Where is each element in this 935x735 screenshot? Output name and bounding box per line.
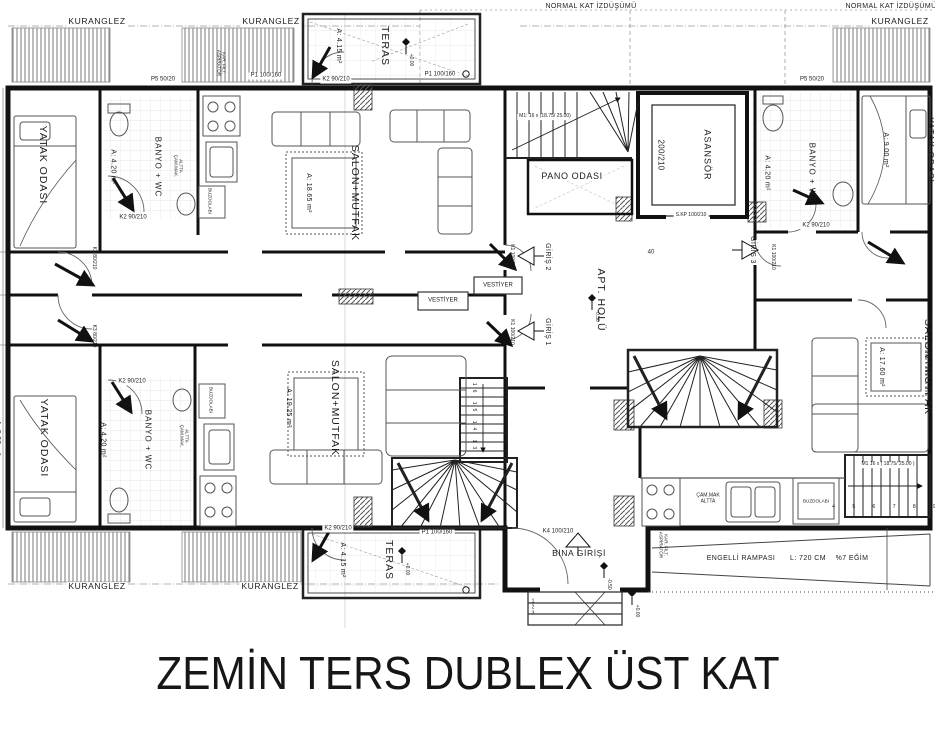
- giris-1-label: GİRİŞ 1: [543, 318, 551, 346]
- dim-40: 40: [648, 250, 655, 257]
- tag-p5: P5 50/20: [149, 77, 177, 84]
- stair-formula: M1: 16 x (18.75/ 25.00): [517, 114, 573, 120]
- giris-3-label: GİRİŞ 3: [748, 236, 756, 264]
- room-label-apt-holu: APT. HOLÜ: [595, 268, 607, 331]
- stair-left-unit: [392, 378, 517, 528]
- drawing-title: ZEMİN TERS DUBLEX ÜST KAT: [156, 646, 779, 700]
- giris-2-label: GİRİŞ 2: [543, 243, 551, 271]
- entrance-arrows: [518, 241, 758, 556]
- stair-winder-right: [628, 350, 777, 427]
- room-label-banyo-tr: BANYO + WC A: 4.20 m²: [744, 143, 853, 203]
- fridge-label: BUZDOLABI: [207, 188, 212, 214]
- tag-k3: K3 80/210: [90, 247, 96, 270]
- kuranglez-label: KURANGLEZ: [240, 17, 301, 27]
- ramp-slope: %7 EĞİM: [834, 555, 871, 563]
- room-label-yatak-bl: YATAK ODASI A: 9.90 m²: [0, 399, 87, 478]
- room-label-teras-bot: TERAS A: 4.15 m²: [320, 540, 432, 580]
- tag-p5: P5 50/20: [798, 77, 826, 84]
- stair-numbers: 4 5 6 7 8 9: [832, 505, 935, 511]
- tag-k1: K1 100/210: [508, 319, 514, 345]
- room-label-salon-bl: SALON+MUTFAK A: 19.25 m²: [266, 360, 378, 456]
- room-label-salon-tl: SALON+MUTFAK A: 18.65 m²: [286, 145, 398, 241]
- aspirator-label: KAR. FİLT. ASPİRATÖR: [216, 50, 227, 76]
- washer-label: ÇAM.MAK ALTTA: [696, 493, 719, 505]
- tag-k2: K2 90/210: [117, 215, 148, 222]
- tag-k2: K2 90/210: [320, 77, 351, 84]
- ramp-label: ENGELLİ RAMPASI: [705, 555, 778, 563]
- tag-k1: K1 100/210: [508, 244, 514, 270]
- room-label-salon-r: SALON+MUTFAK A: 17.60 m²: [859, 319, 935, 415]
- tag-k2: K2 90/210: [116, 379, 147, 386]
- fridge-label: BUZDOLABI: [803, 498, 829, 503]
- bina-girisi-label: BİNA GİRİŞİ: [552, 549, 606, 559]
- tag-p1: P1 100/160: [420, 530, 455, 537]
- level-marker: +0.00: [407, 54, 413, 67]
- aspirator-label: KAR. FİLT. ASPİRATÖR: [658, 532, 669, 558]
- tag-k2: K2 90/210: [322, 526, 353, 533]
- floor-plan: NORMAL KAT İZDÜŞÜMÜ NORMAL KAT İZDÜŞÜMÜ …: [0, 0, 935, 735]
- stair-numbers: 16 15 14 13: [470, 383, 476, 453]
- entry-step-numbers: 1 2 3: [532, 599, 535, 616]
- stair-formula: M1 16 x ( 18.75/ 25.00 ): [859, 462, 916, 468]
- plan-linework: [0, 0, 935, 735]
- room-label-yatak-tl: YATAK ODASI A: 9.30 m²: [0, 126, 86, 205]
- tag-k4: K4 100/210: [541, 529, 576, 536]
- kuranglez-label: KURANGLEZ: [66, 17, 127, 27]
- room-label-asansor: ASANSÖR 200/210: [638, 129, 749, 180]
- tag-p1: P1 100/160: [249, 73, 284, 80]
- level-marker: -0.50: [593, 310, 599, 321]
- kuranglez-label: KURANGLEZ: [239, 582, 300, 592]
- vestiyer-label: VESTİYER: [428, 298, 458, 305]
- projection-label-right: NORMAL KAT İZDÜŞÜMÜ: [845, 3, 935, 11]
- fridge-label: BUZDOLABI: [208, 387, 213, 413]
- tag-p1: P1 100/160: [423, 72, 458, 79]
- tag-k2: K2 90/210: [800, 223, 831, 230]
- level-marker: +0.00: [403, 563, 409, 576]
- tag-skp: S.KP 100/210: [674, 213, 709, 219]
- room-label-yatak-tr: YATAK ODASI A: 9.00 m²: [862, 117, 935, 183]
- tag-k3: K3 80/210: [90, 325, 96, 348]
- room-label-pano: PANO ODASI: [539, 171, 604, 181]
- ramp-length: L: 720 CM: [788, 555, 828, 563]
- tag-k1: K1 100/210: [769, 244, 775, 270]
- stair-top: [505, 92, 638, 158]
- entry-steps: [528, 592, 622, 625]
- vestiyer-label: VESTİYER: [483, 283, 513, 290]
- room-label-banyo-bl: BANYO + WC A: 4.20 m²: [80, 410, 189, 470]
- level-marker: -0.50: [605, 578, 611, 589]
- level-marker: +0.00: [633, 605, 639, 618]
- kuranglez-label: KURANGLEZ: [869, 17, 930, 27]
- washer-label: ALTTA ÇAM.MAK.: [179, 425, 190, 448]
- washer-label: ALTTA ÇAM.MAK.: [173, 155, 184, 178]
- kuranglez-label: KURANGLEZ: [66, 582, 127, 592]
- projection-label-left: NORMAL KAT İZDÜŞÜMÜ: [545, 3, 636, 11]
